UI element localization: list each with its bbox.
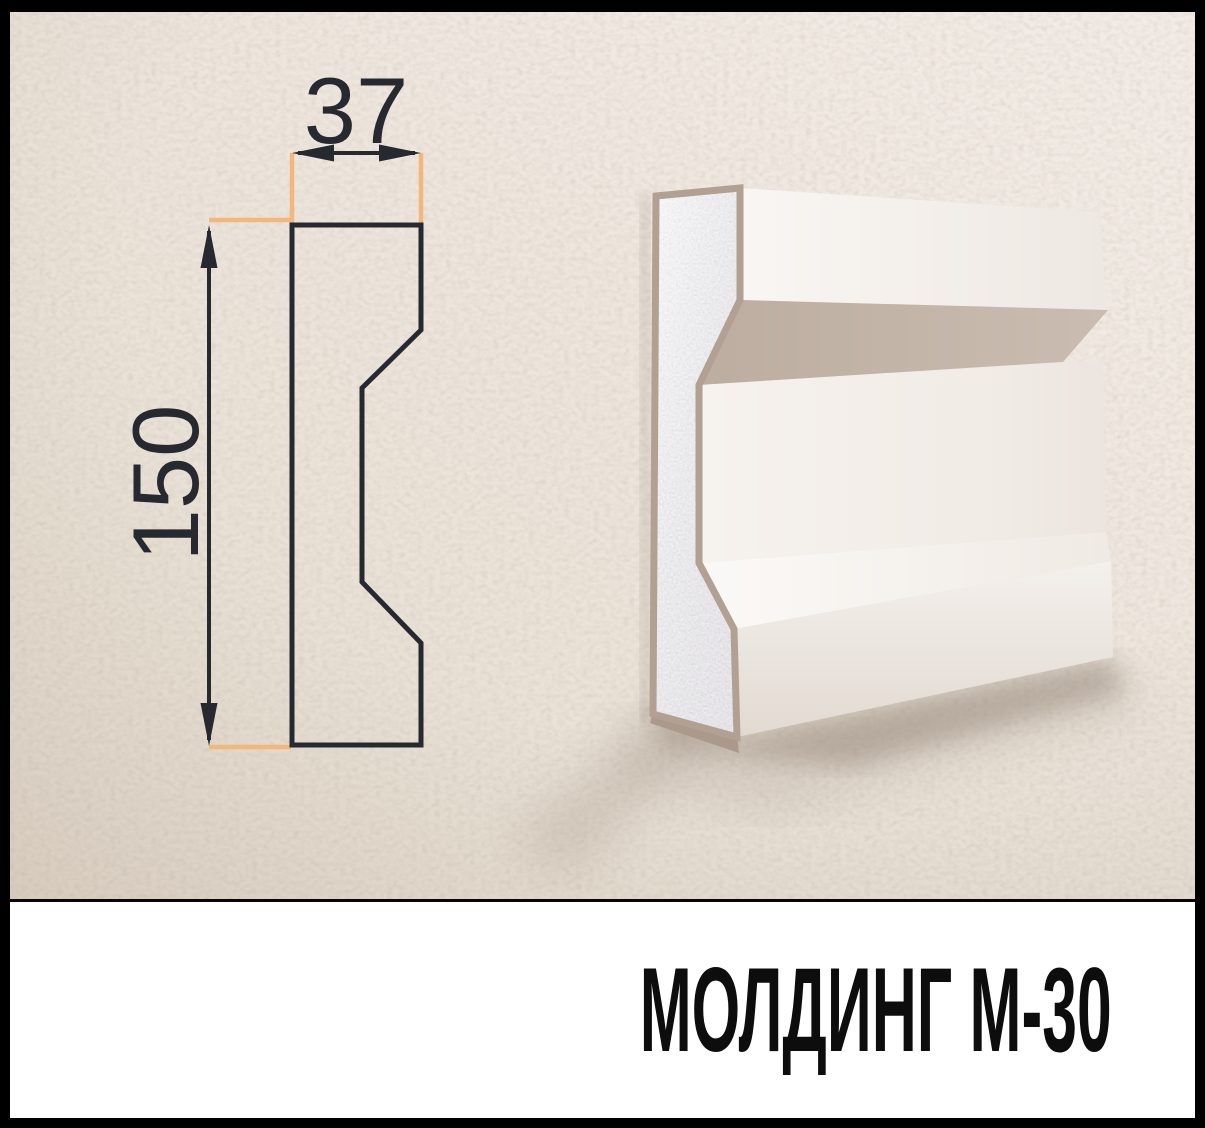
- wall-scene: 37 150: [10, 12, 1195, 899]
- height-dimension-label: 150: [113, 405, 218, 562]
- product-title: МОЛДИНГ М-30: [640, 950, 1112, 1070]
- edge-contact-shadow: [640, 194, 650, 722]
- caption-bar: МОЛДИНГ М-30: [10, 902, 1195, 1118]
- width-dimension-label: 37: [304, 58, 409, 163]
- molding-middle-face: [699, 362, 1106, 563]
- product-card: 37 150 МОЛДИНГ М-30: [0, 0, 1205, 1128]
- scene-canvas: 37 150: [10, 12, 1195, 899]
